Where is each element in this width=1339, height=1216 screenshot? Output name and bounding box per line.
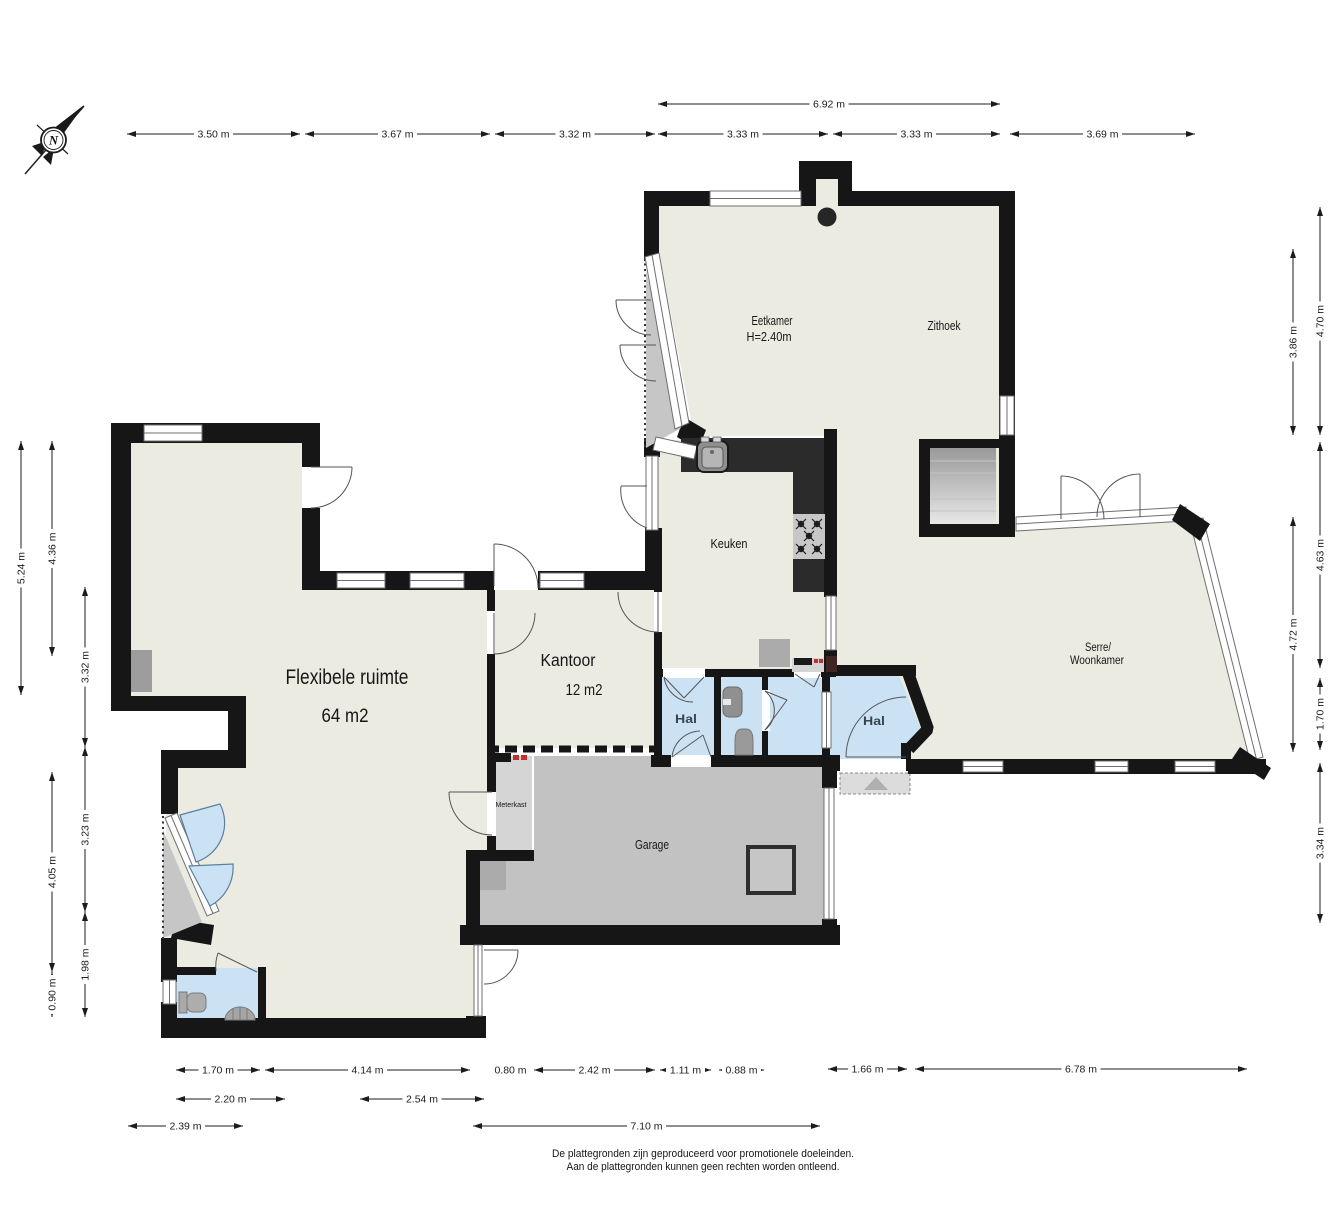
svg-text:3.34 m: 3.34 m — [1315, 827, 1327, 859]
svg-text:2.54 m: 2.54 m — [406, 1094, 438, 1106]
svg-text:1.70 m: 1.70 m — [202, 1065, 234, 1077]
svg-text:4.05 m: 4.05 m — [47, 856, 59, 888]
svg-text:1.11 m: 1.11 m — [670, 1065, 702, 1077]
svg-text:Meterkast: Meterkast — [496, 802, 527, 809]
svg-text:Keuken: Keuken — [711, 536, 748, 551]
svg-text:1.66 m: 1.66 m — [851, 1064, 883, 1076]
svg-text:3.67 m: 3.67 m — [381, 129, 413, 141]
svg-text:3.32 m: 3.32 m — [559, 129, 591, 141]
svg-text:2.20 m: 2.20 m — [214, 1094, 246, 1106]
svg-text:1.70 m: 1.70 m — [1315, 698, 1327, 730]
svg-text:3.32 m: 3.32 m — [80, 651, 92, 683]
svg-text:Serre/: Serre/ — [1085, 642, 1112, 654]
svg-text:6.78 m: 6.78 m — [1065, 1064, 1097, 1076]
svg-text:3.69 m: 3.69 m — [1086, 129, 1118, 141]
svg-text:De plattegronden zijn geproduc: De plattegronden zijn geproduceerd voor … — [552, 1148, 854, 1160]
svg-text:64 m2: 64 m2 — [322, 705, 369, 727]
svg-text:Hal: Hal — [675, 712, 697, 726]
svg-text:1.98 m: 1.98 m — [80, 948, 92, 980]
svg-text:7.10 m: 7.10 m — [630, 1121, 662, 1133]
svg-text:3.23 m: 3.23 m — [80, 813, 92, 845]
svg-text:12 m2: 12 m2 — [566, 682, 603, 699]
svg-text:Woonkamer: Woonkamer — [1070, 655, 1124, 667]
svg-text:3.33 m: 3.33 m — [727, 129, 759, 141]
svg-text:4.72 m: 4.72 m — [1288, 618, 1300, 650]
svg-text:5.24 m: 5.24 m — [16, 552, 28, 584]
svg-text:Garage: Garage — [635, 838, 669, 852]
svg-text:Eetkamer: Eetkamer — [752, 313, 793, 328]
svg-text:Aan de plattegronden kunnen ge: Aan de plattegronden kunnen geen rechten… — [567, 1161, 840, 1173]
svg-text:N: N — [48, 134, 59, 148]
svg-text:0.88 m: 0.88 m — [725, 1065, 757, 1077]
svg-text:Hal: Hal — [863, 714, 885, 728]
svg-text:4.14 m: 4.14 m — [351, 1065, 383, 1077]
svg-text:H=2.40m: H=2.40m — [747, 329, 792, 344]
svg-text:0.90 m: 0.90 m — [47, 978, 59, 1010]
svg-text:6.92 m: 6.92 m — [813, 99, 845, 111]
svg-text:0.80 m: 0.80 m — [494, 1065, 526, 1077]
svg-text:4.36 m: 4.36 m — [47, 532, 59, 564]
svg-text:3.50 m: 3.50 m — [197, 129, 229, 141]
svg-text:4.70 m: 4.70 m — [1315, 305, 1327, 337]
svg-text:3.33 m: 3.33 m — [900, 129, 932, 141]
svg-text:Flexibele ruimte: Flexibele ruimte — [286, 666, 409, 689]
svg-text:2.39 m: 2.39 m — [169, 1121, 201, 1133]
svg-text:4.63 m: 4.63 m — [1315, 539, 1327, 571]
svg-text:Kantoor: Kantoor — [541, 650, 596, 670]
svg-text:3.86 m: 3.86 m — [1288, 326, 1300, 358]
svg-text:Zithoek: Zithoek — [928, 319, 962, 333]
svg-text:2.42 m: 2.42 m — [578, 1065, 610, 1077]
